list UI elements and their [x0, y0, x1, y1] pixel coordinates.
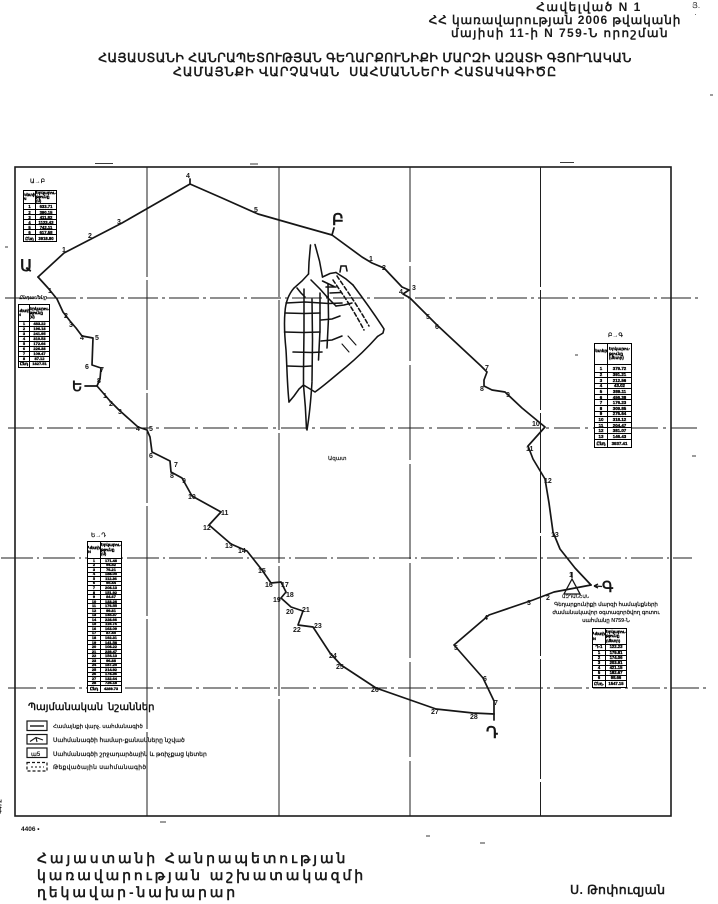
svg-text:ա5: ա5 [31, 752, 41, 758]
svg-text:Համայնքի վարչ. սահմանագիծ: Համայնքի վարչ. սահմանագիծ [53, 722, 143, 730]
svg-text:Սահմանագծի շրջադարձային և թռիչ: Սահմանագծի շրջադարձային և թռիչքաց կետեր [53, 750, 207, 758]
svg-text:Թեքվածային սահմանագիծ: Թեքվածային սահմանագիծ [53, 763, 146, 771]
svg-text:Սահմանագծի համար-քանակները նշվ: Սահմանագծի համար-քանակները նշված [53, 736, 185, 744]
